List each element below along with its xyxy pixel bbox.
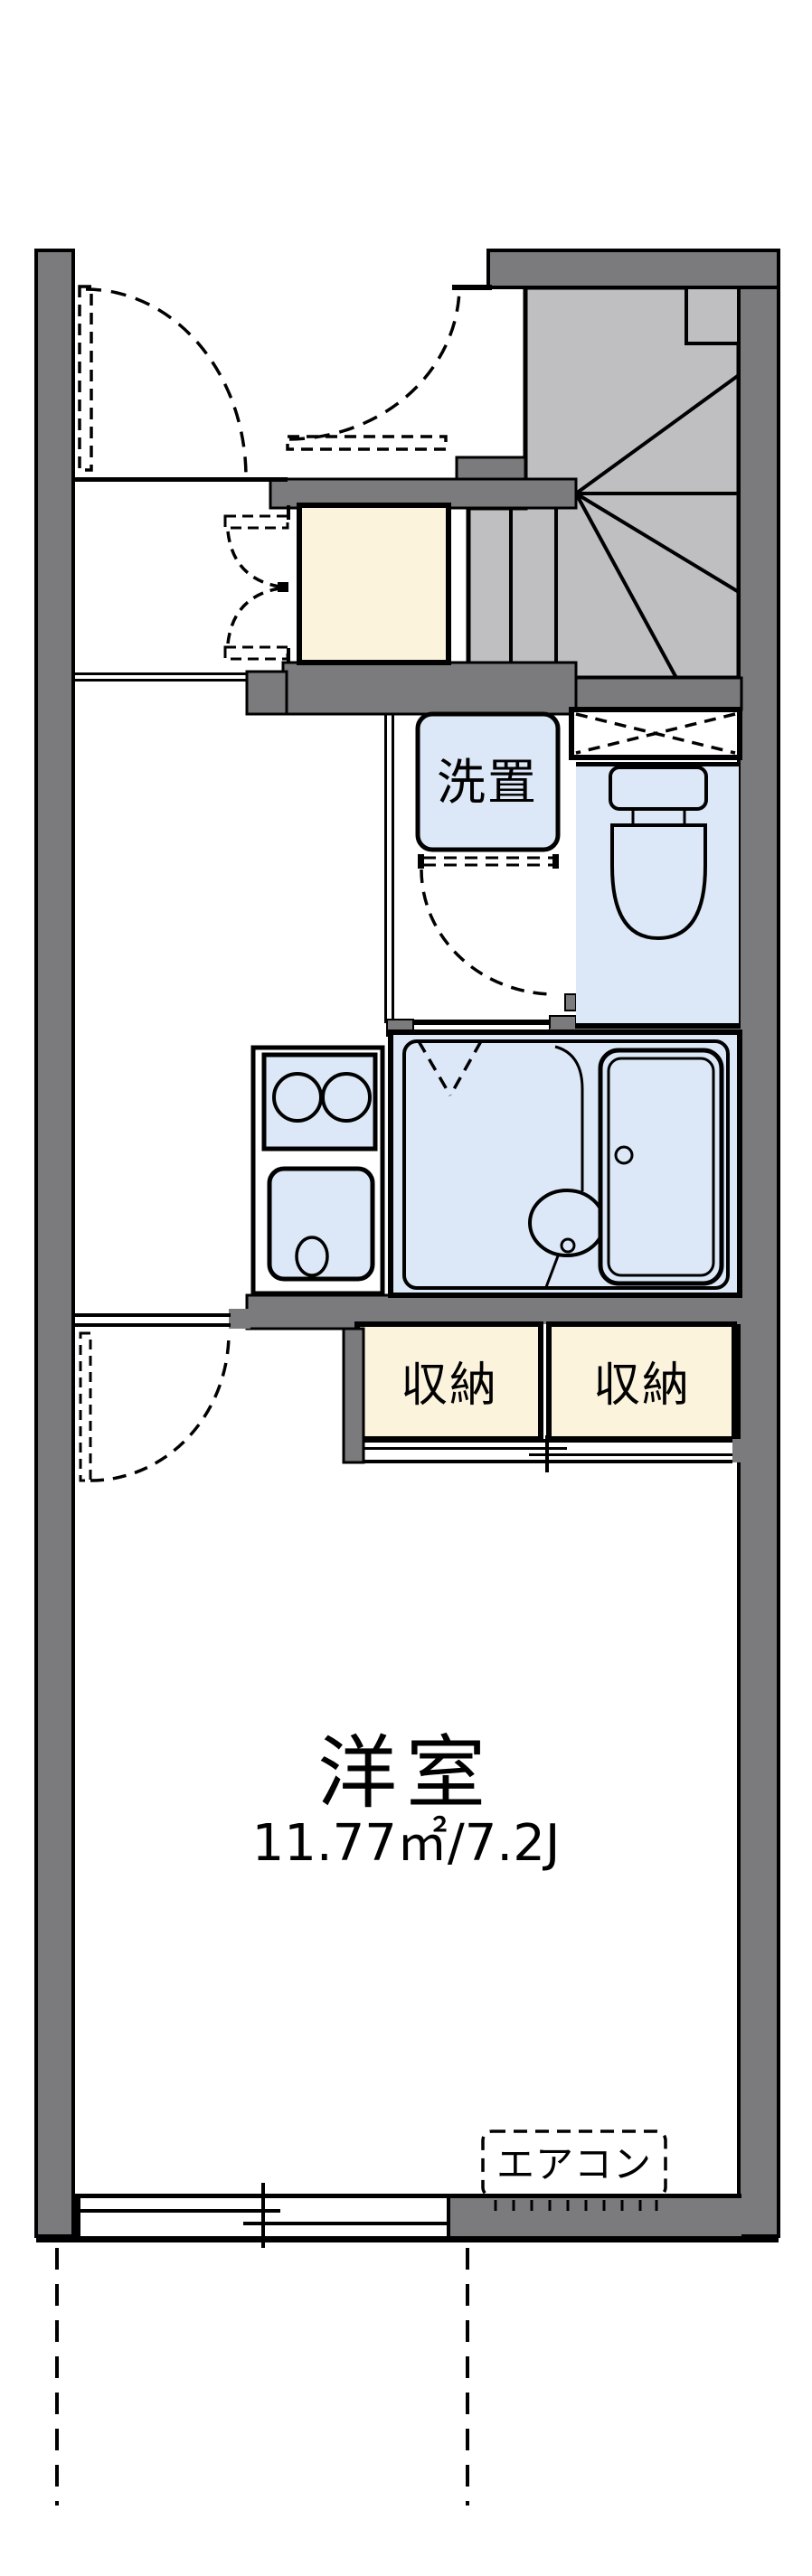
storage-right-label: 収納 [593, 1362, 691, 1409]
genkan-bottom-wall-step [247, 672, 287, 714]
bathtub [600, 1050, 722, 1283]
room-door-header-2 [75, 1323, 231, 1327]
window-end-left [77, 2198, 80, 2236]
closet-slider-left [364, 1447, 567, 1450]
boundary-dashes [57, 2248, 467, 2505]
closet-slider-right [529, 1453, 732, 1456]
hall-edge-line-1 [73, 672, 248, 675]
entry-door-left-leaf [80, 287, 91, 470]
room-entry-door [75, 1313, 231, 1481]
genkan [225, 505, 448, 663]
entry-door-right-swing [289, 287, 459, 439]
bottom-wall-base-line [36, 2236, 779, 2242]
entrance-threshold-line [73, 477, 288, 482]
genkan-door-bar-top [225, 516, 288, 528]
bottom-wall-left-sliver [73, 2198, 77, 2236]
washer-space-label: 洗置 [437, 758, 538, 807]
hall-edge-line-2 [73, 679, 248, 682]
stair-door-header [452, 285, 492, 290]
genkan-door-frame-top [287, 505, 290, 520]
washroom-door-swing [421, 870, 555, 994]
genkan-door-bar-bottom [225, 647, 288, 659]
closet-slider-meet-tick [545, 1435, 549, 1472]
bottom-wall-right [450, 2198, 741, 2236]
storage-side-block-right [732, 1439, 741, 1462]
bottom-wall-top-line [73, 2194, 741, 2198]
genkan-door-latch [278, 582, 288, 592]
washroom-door-cap-right [552, 854, 559, 869]
toilet-bowl [612, 825, 705, 938]
washroom-left-wall-b [392, 714, 394, 1023]
floorplan-page: 洗置 収納 収納 洋室 11.77㎡/7.2J エアコン [0, 0, 812, 2576]
room-door-header-1 [75, 1313, 231, 1317]
right-wall [739, 250, 779, 2236]
toilet-room [550, 762, 741, 1039]
genkan-door-swing-top [228, 531, 279, 587]
kitchen [253, 1048, 382, 1293]
stair-landing [686, 287, 739, 343]
stove-burner-right [323, 1074, 370, 1121]
washroom-folding-door [423, 858, 553, 865]
pipe-shaft [571, 710, 740, 757]
stove-burner-left [274, 1074, 321, 1121]
toilet-tank [610, 767, 706, 809]
aircon-label: エアコン [496, 2146, 652, 2184]
genkan-door-swing-bottom [228, 588, 279, 644]
window-end-right [447, 2198, 450, 2236]
stair-step-wall [457, 457, 525, 481]
western-room-label: 洋室 [317, 1734, 495, 1813]
western-room-area-label: 11.77㎡/7.2J [252, 1819, 561, 1869]
window-mullion [261, 2183, 265, 2248]
room-door-leaf [80, 1333, 90, 1481]
toilet-bottom-line [576, 1023, 739, 1029]
hall-bottom-wall-step [229, 1309, 250, 1329]
entry-door-right-leaf [288, 437, 446, 449]
top-wall [488, 250, 779, 287]
genkan-bottom-wall [283, 663, 576, 714]
washroom-bottom-line [411, 1020, 552, 1025]
window-pane-left [77, 2209, 280, 2213]
bath-washbasin [530, 1190, 604, 1255]
closet-top-wall [391, 1295, 741, 1324]
washroom-door-cap-left [418, 854, 424, 869]
genkan-door-frame-bottom [287, 648, 290, 663]
entry-door-left-swing [86, 289, 246, 477]
sink-drain [297, 1237, 327, 1275]
left-wall [36, 250, 73, 2236]
room-door-swing [90, 1333, 229, 1481]
washroom-door-hinge-notch [565, 994, 576, 1011]
storage-left-label: 収納 [401, 1362, 498, 1409]
window-pane-right [243, 2222, 450, 2225]
floorplan-drawing [0, 0, 812, 2576]
bathroom [391, 1032, 740, 1295]
genkan-step [299, 505, 448, 663]
washroom-left-wall-a [384, 714, 387, 1023]
storage-side-block-left [344, 1329, 364, 1462]
